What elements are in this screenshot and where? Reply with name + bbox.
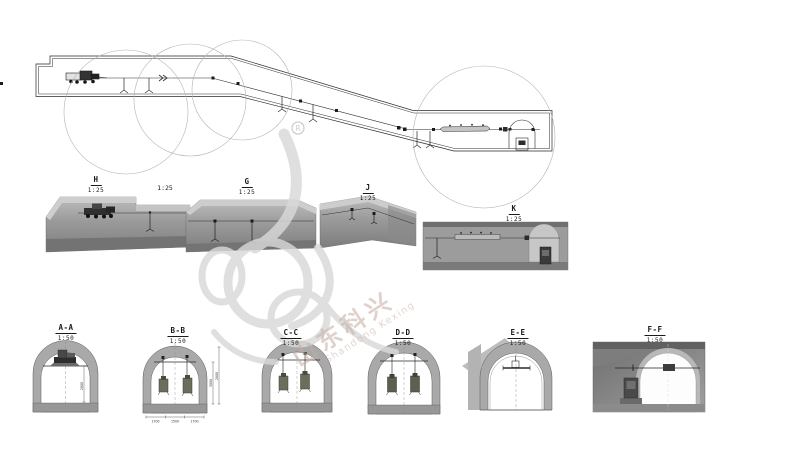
cross-scale-aa: 1:50 xyxy=(55,335,76,342)
label-cross-aa: A-A 1:50 xyxy=(55,315,76,342)
dim-text-bb-b3: 1700 xyxy=(190,420,198,424)
section-letter-h: H xyxy=(90,175,101,186)
label-cross-ff: F-F 1:50 xyxy=(644,317,665,344)
registered-mark: R xyxy=(295,124,300,133)
cross-letter-ee: E-E xyxy=(507,328,528,339)
cross-scale-ee: 1:50 xyxy=(507,340,528,347)
conveyor-plan-icon xyxy=(440,124,490,132)
dim-text-bb-r1: 3000 xyxy=(209,379,213,387)
cross-scale-cc: 1:50 xyxy=(280,340,301,347)
cross-letter-aa: A-A xyxy=(55,323,76,334)
plan-centerline xyxy=(84,78,540,130)
plan-view xyxy=(0,40,555,208)
cross-scale-dd: 1:50 xyxy=(392,340,413,347)
dim-text-bb-b2: 1500 xyxy=(171,420,179,424)
dim-text-bb-b1: 1700 xyxy=(151,420,159,424)
section-scale-j: 1:25 xyxy=(360,195,376,202)
section-scale-k: 1:25 xyxy=(506,216,522,223)
section-h-view xyxy=(46,197,190,252)
cross-scale-ff: 1:50 xyxy=(644,337,665,344)
cross-letter-bb: B-B xyxy=(167,326,188,337)
section-scale-h: 1:25 xyxy=(88,187,104,194)
cross-section-ff xyxy=(593,342,705,412)
cross-section-ee xyxy=(462,338,552,410)
label-cross-cc: C-C 1:50 xyxy=(280,320,301,347)
section-scale-g: 1:25 xyxy=(239,189,255,196)
section-letter-k: K xyxy=(508,204,519,215)
cross-letter-ff: F-F xyxy=(644,325,665,336)
niche-plan xyxy=(509,120,535,150)
drawing-svg: 2800 3000 2800 1700 1500 1700 xyxy=(0,0,800,450)
tunnel-outline-outer xyxy=(36,56,552,151)
label-extra-scale: 1:25 xyxy=(157,184,173,192)
tunnel-outline-inner xyxy=(39,59,550,149)
label-section-h: H 1:25 xyxy=(88,167,104,194)
section-k-view xyxy=(423,222,568,270)
sprayer-units-cc xyxy=(278,352,311,393)
cross-scale-bb: 1:50 xyxy=(167,338,188,345)
sprayer-units-dd xyxy=(387,353,421,395)
drawing-canvas: 2800 3000 2800 1700 1500 1700 xyxy=(0,0,800,450)
sprayer-units-bb xyxy=(158,355,193,396)
section-letter-j: J xyxy=(362,183,373,194)
cross-letter-cc: C-C xyxy=(280,328,301,339)
detail-circles xyxy=(64,40,555,208)
cross-section-aa: 2800 xyxy=(33,341,98,413)
dim-lines-bb-bottom xyxy=(146,416,204,419)
section-letter-g: G xyxy=(241,177,252,188)
label-section-g: G 1:25 xyxy=(239,169,255,196)
label-section-k: K 1:25 xyxy=(506,196,522,223)
dim-text-aa: 2800 xyxy=(80,382,84,390)
label-cross-bb: B-B 1:50 xyxy=(167,318,188,345)
section-j-view xyxy=(320,196,416,248)
label-cross-ee: E-E 1:50 xyxy=(507,320,528,347)
cross-section-dd xyxy=(368,342,440,414)
cross-letter-dd: D-D xyxy=(392,328,413,339)
cabinet-section-icon xyxy=(540,247,551,264)
dim-text-bb-r2: 2800 xyxy=(215,372,219,380)
cross-section-cc xyxy=(262,341,332,412)
cross-section-bb: 3000 2800 1700 1500 1700 xyxy=(143,342,221,424)
plan-hangers xyxy=(120,78,434,148)
crown-device-ee xyxy=(503,356,530,371)
label-section-j: J 1:25 xyxy=(360,175,376,202)
label-cross-dd: D-D 1:50 xyxy=(392,320,413,347)
